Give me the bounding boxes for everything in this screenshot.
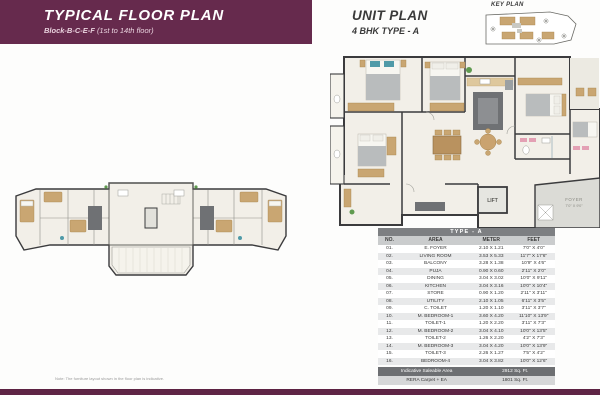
rera-carpet-value: 1801 Sq. Ft. — [475, 376, 555, 385]
title-banner: TYPICAL FLOOR PLAN Block-B-C-E-F (1st to… — [0, 0, 312, 44]
table-row: 11. TOILET-1 1.20 X 2.20 3'11" X 7'3" — [378, 320, 555, 328]
unit-plan-drawing: LIFT FOYER 7'0" X 9'0" — [330, 54, 600, 228]
table-row: 03. BALCONY 3.28 X 1.38 10'9" X 4'6" — [378, 260, 555, 268]
wc-icon — [523, 146, 529, 154]
plant-icon — [350, 210, 355, 215]
area-table-header-row: NO. AREA METER FEET — [378, 236, 555, 245]
plant-icon — [466, 67, 472, 73]
cell-no: 15. — [378, 350, 401, 358]
area-table-body: 01. E. FOYER 2.10 X 1.21 7'0" X 4'0" 02.… — [378, 245, 555, 365]
cell-area: M. BEDROOM-3 — [401, 343, 470, 351]
typical-floor-plan-drawing — [6, 176, 296, 282]
table-row: 14. M. BEDROOM-3 3.04 X 4.20 10'0" X 13'… — [378, 343, 555, 351]
disclaimer-text: Note: The furniture layout shown in the … — [55, 376, 164, 381]
saleable-area-row: Indicative Saleable Area 2912 Sq. Ft. — [378, 367, 555, 376]
wardrobe — [518, 78, 562, 85]
cell-feet: 2'11" X 2'0" — [512, 268, 554, 276]
cell-feet: 11'10" X 13'9" — [512, 313, 554, 321]
teal-pillow — [370, 61, 380, 67]
cell-meter: 2.10 X 1.21 — [470, 245, 512, 253]
cell-meter: 3.04 X 4.20 — [470, 343, 512, 351]
adjacent-unit-area — [570, 58, 599, 109]
page-title: TYPICAL FLOOR PLAN — [44, 7, 312, 24]
unit-plan-header: UNIT PLAN 4 BHK TYPE - A — [352, 8, 428, 36]
cell-area: E. FOYER — [401, 245, 470, 253]
wardrobe — [430, 103, 464, 111]
utility-platform — [415, 202, 445, 211]
unit-plan-subtitle: 4 BHK TYPE - A — [352, 26, 428, 36]
cell-feet: 10'0" X 13'9" — [512, 343, 554, 351]
saleable-area-label: Indicative Saleable Area — [378, 367, 475, 376]
area-table-title: TYPE - A — [378, 228, 555, 236]
table-row: 08. UTILITY 2.10 X 1.05 6'11" X 3'5" — [378, 298, 555, 306]
cell-area: PUJA — [401, 268, 470, 276]
col-header-no: NO. — [378, 236, 401, 245]
cell-meter: 3.04 X 4.10 — [470, 328, 512, 336]
rera-carpet-row: RERA Carpet + EA 1801 Sq. Ft. — [378, 376, 555, 385]
table-row: 04. PUJA 0.90 X 0.60 2'11" X 2'0" — [378, 268, 555, 276]
cell-area: BALCONY — [401, 260, 470, 268]
cell-area: M. BEDROOM-2 — [401, 328, 470, 336]
cell-meter: 3.53 X 5.33 — [470, 253, 512, 261]
unit-plan-title: UNIT PLAN — [352, 8, 428, 23]
cell-area: KITCHEN — [401, 283, 470, 291]
cell-meter: 1.20 X 2.20 — [470, 320, 512, 328]
cell-meter: 3.04 X 3.02 — [470, 275, 512, 283]
cell-no: 05. — [378, 275, 401, 283]
cell-area: UTILITY — [401, 298, 470, 306]
rera-carpet-label: RERA Carpet + EA — [378, 376, 475, 385]
bottom-brand-strip — [0, 389, 600, 395]
dining-table — [433, 136, 461, 154]
cell-no: 16. — [378, 358, 401, 366]
cell-no: 07. — [378, 290, 401, 298]
cell-meter: 2.26 X 1.27 — [470, 350, 512, 358]
cell-no: 12. — [378, 328, 401, 336]
cell-no: 10. — [378, 313, 401, 321]
cell-feet: 10'0" X 13'5" — [512, 328, 554, 336]
cell-meter: 3.28 X 1.38 — [470, 260, 512, 268]
cell-area: M. BEDROOM-1 — [401, 313, 470, 321]
table-row: 10. M. BEDROOM-1 3.60 X 4.20 11'10" X 13… — [378, 313, 555, 321]
fridge-icon — [505, 80, 513, 90]
cell-area: TOILET-3 — [401, 350, 470, 358]
cell-area: BEDROOM-4 — [401, 358, 470, 366]
cell-no: 02. — [378, 253, 401, 261]
table-row: 13. TOILET-2 1.26 X 2.20 4'2" X 7'3" — [378, 335, 555, 343]
lift-shaft — [145, 208, 157, 228]
foyer-dimension: 7'0" X 9'0" — [565, 204, 583, 208]
cell-no: 11. — [378, 320, 401, 328]
cell-area: TOILET-2 — [401, 335, 470, 343]
table-row: 12. M. BEDROOM-2 3.04 X 4.10 10'0" X 13'… — [378, 328, 555, 336]
cell-feet: 3'11" X 3'7" — [512, 305, 554, 313]
cell-feet: 7'0" X 4'0" — [512, 245, 554, 253]
cell-no: 01. — [378, 245, 401, 253]
cell-area: LIVING ROOM — [401, 253, 470, 261]
cell-area: TOILET-1 — [401, 320, 470, 328]
table-row: 05. DINING 3.04 X 3.02 10'0" X 9'11" — [378, 275, 555, 283]
sink-icon — [480, 79, 490, 84]
cell-meter: 1.26 X 2.20 — [470, 335, 512, 343]
page-subtitle: Block-B-C-E-F (1st to 14th floor) — [44, 26, 312, 35]
table-row: 06. KITCHEN 3.04 X 3.16 10'0" X 10'4" — [378, 283, 555, 291]
cell-feet: 10'9" X 4'6" — [512, 260, 554, 268]
cell-feet: 10'0" X 12'6" — [512, 358, 554, 366]
table-row: 02. LIVING ROOM 3.53 X 5.33 11'7" X 17'6… — [378, 253, 555, 261]
table-row: 15. TOILET-3 2.26 X 1.27 7'5" X 4'2" — [378, 350, 555, 358]
sofa — [358, 169, 384, 177]
central-balcony — [112, 247, 190, 273]
key-plan-outline — [486, 12, 576, 44]
col-header-meter: METER — [470, 236, 512, 245]
cell-no: 08. — [378, 298, 401, 306]
cell-feet: 7'5" X 4'2" — [512, 350, 554, 358]
foyer-area — [535, 178, 600, 228]
table-row: 16. BEDROOM-4 3.04 X 3.82 10'0" X 12'6" — [378, 358, 555, 366]
key-plan-map — [484, 10, 578, 46]
wc-icon — [334, 150, 340, 158]
cell-feet: 10'0" X 9'11" — [512, 275, 554, 283]
cell-feet: 4'2" X 7'3" — [512, 335, 554, 343]
cell-area: STORE — [401, 290, 470, 298]
saleable-area-value: 2912 Sq. Ft. — [475, 367, 555, 376]
basin-icon — [542, 138, 550, 143]
cell-meter: 0.90 X 1.20 — [470, 290, 512, 298]
cell-meter: 2.10 X 1.05 — [470, 298, 512, 306]
wardrobe — [348, 103, 394, 111]
cell-no: 09. — [378, 305, 401, 313]
cell-feet: 6'11" X 3'5" — [512, 298, 554, 306]
cell-area: DINING — [401, 275, 470, 283]
cell-meter: 0.90 X 0.60 — [470, 268, 512, 276]
wardrobe — [387, 137, 396, 155]
table-row: 07. STORE 0.90 X 1.20 2'11" X 3'11" — [378, 290, 555, 298]
cell-no: 04. — [378, 268, 401, 276]
floor-range: (1st to 14th floor) — [97, 26, 154, 35]
block-names: Block-B-C-E-F — [44, 26, 95, 35]
cell-no: 13. — [378, 335, 401, 343]
dining-area — [433, 130, 461, 160]
cell-feet: 3'11" X 7'3" — [512, 320, 554, 328]
cell-meter: 3.04 X 3.82 — [470, 358, 512, 366]
bedroom-2 — [425, 62, 465, 111]
cell-meter: 3.60 X 4.20 — [470, 313, 512, 321]
table-row: 01. E. FOYER 2.10 X 1.21 7'0" X 4'0" — [378, 245, 555, 253]
wc-icon — [334, 95, 340, 103]
col-header-area: AREA — [401, 236, 470, 245]
lift-label: LIFT — [487, 198, 498, 204]
cell-no: 14. — [378, 343, 401, 351]
cell-no: 03. — [378, 260, 401, 268]
foyer-label: FOYER — [565, 197, 583, 202]
brochure-page: TYPICAL FLOOR PLAN Block-B-C-E-F (1st to… — [0, 0, 600, 400]
key-plan-label: KEY PLAN — [491, 2, 524, 8]
cell-feet: 11'7" X 17'6" — [512, 253, 554, 261]
area-table: TYPE - A NO. AREA METER FEET 01. E. FOYE… — [378, 228, 555, 385]
cell-feet: 10'0" X 10'4" — [512, 283, 554, 291]
cell-area: C. TOILET — [401, 305, 470, 313]
cell-feet: 2'11" X 3'11" — [512, 290, 554, 298]
teal-pillow — [384, 61, 394, 67]
cell-no: 06. — [378, 283, 401, 291]
cell-meter: 1.20 X 1.10 — [470, 305, 512, 313]
col-header-feet: FEET — [512, 236, 554, 245]
cell-meter: 3.04 X 3.16 — [470, 283, 512, 291]
table-row: 09. C. TOILET 1.20 X 1.10 3'11" X 3'7" — [378, 305, 555, 313]
